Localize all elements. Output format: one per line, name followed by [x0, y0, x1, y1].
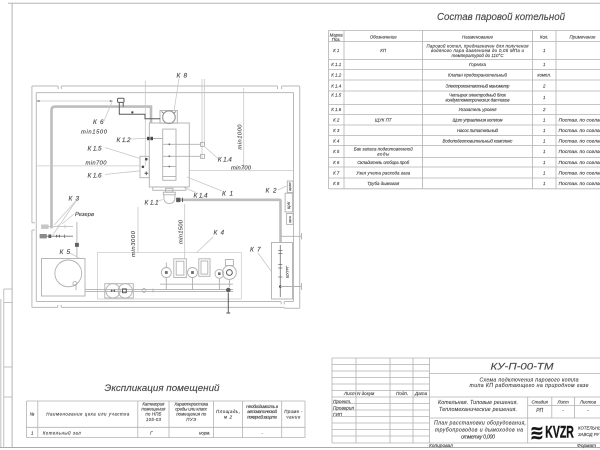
svg-text:Постав. по соглас.: Постав. по соглас.	[559, 160, 600, 165]
svg-text:min1000: min1000	[238, 124, 244, 150]
svg-text:К 6: К 6	[93, 119, 104, 126]
svg-text:Формат: Формат	[577, 443, 596, 449]
svg-text:отметку 0,000: отметку 0,000	[461, 435, 495, 441]
svg-text:Листов: Листов	[579, 399, 597, 404]
svg-text:Копировал: Копировал	[429, 443, 453, 449]
svg-text:KVZR: KVZR	[545, 424, 574, 442]
svg-text:min1500: min1500	[81, 130, 108, 136]
svg-text:К 8: К 8	[177, 73, 188, 80]
svg-text:КОТЕЛЬНЫ: КОТЕЛЬНЫ	[578, 426, 600, 431]
svg-text:ЩУК ПТ: ЩУК ПТ	[375, 118, 392, 123]
svg-text:воды: воды	[377, 152, 390, 157]
svg-text:Примечание: Примечание	[570, 35, 597, 40]
svg-text:К 1.6: К 1.6	[331, 107, 341, 112]
svg-text:ЗАВОД РУ: ЗАВОД РУ	[578, 432, 600, 437]
svg-text:Резерв: Резерв	[75, 212, 94, 218]
svg-text:Постав. по соглас.: Постав. по соглас.	[559, 181, 600, 186]
svg-text:компл.: компл.	[537, 73, 551, 78]
svg-text:Проверил: Проверил	[333, 405, 354, 410]
svg-text:чание: чание	[286, 414, 301, 419]
svg-text:К 3: К 3	[69, 196, 80, 203]
svg-text:min700: min700	[231, 166, 252, 172]
svg-text:К 1.4: К 1.4	[331, 83, 341, 88]
svg-text:min1500: min1500	[179, 219, 185, 244]
svg-text:Лист: Лист	[343, 391, 356, 396]
svg-text:Щит управления котлом: Щит управления котлом	[453, 118, 503, 123]
svg-text:КП: КП	[380, 48, 387, 53]
svg-text:К 1.5: К 1.5	[331, 93, 341, 98]
svg-text:Постав. по соглас.: Постав. по соглас.	[559, 149, 600, 154]
svg-text:Подп.: Подп.	[396, 391, 408, 396]
svg-text:К 8: К 8	[333, 181, 340, 186]
svg-text:К 7: К 7	[250, 247, 261, 254]
svg-text:Котельный зал: Котельный зал	[43, 431, 82, 436]
svg-text:Горелка: Горелка	[469, 62, 487, 67]
svg-text:ГИП: ГИП	[333, 412, 343, 417]
svg-text:К 1.2: К 1.2	[117, 137, 131, 144]
svg-text:Насос питательный: Насос питательный	[457, 128, 499, 133]
svg-text:Стадия: Стадия	[531, 399, 548, 404]
svg-text:Клапан предохранительный: Клапан предохранительный	[448, 73, 508, 78]
svg-text:температурой до 110°С: температурой до 110°С	[452, 53, 505, 58]
svg-text:Постав. по соглас.: Постав. по соглас.	[559, 170, 600, 175]
svg-text:N докум: N докум	[357, 391, 375, 396]
svg-text:ЩУК: ЩУК	[287, 201, 291, 209]
svg-text:пожарной защите: пожарной защите	[247, 414, 278, 419]
svg-text:К 1.4: К 1.4	[194, 193, 208, 200]
svg-text:ПУЭ: ПУЭ	[186, 417, 196, 422]
svg-text:К 3: К 3	[333, 128, 340, 133]
svg-text:Постав. по соглас.: Постав. по соглас.	[559, 128, 600, 133]
svg-text:кондуктометрических датчиков: кондуктометрических датчиков	[446, 98, 511, 103]
svg-text:min3000: min3000	[131, 230, 137, 257]
svg-text:ЩАВР: ЩАВР	[288, 182, 292, 191]
svg-text:Постав. по соглас.: Постав. по соглас.	[559, 118, 600, 123]
svg-text:2: 2	[542, 107, 546, 112]
svg-text:Лист: Лист	[556, 399, 569, 404]
svg-text:Экспликация помещений: Экспликация помещений	[105, 383, 220, 393]
svg-text:Узел учета расхода газа: Узел учета расхода газа	[356, 170, 411, 175]
svg-text:норм.: норм.	[199, 431, 210, 436]
svg-text:min700: min700	[86, 160, 108, 166]
svg-text:РП: РП	[536, 408, 543, 414]
svg-text:К 1.4: К 1.4	[218, 157, 232, 164]
svg-text:Обозначение: Обозначение	[370, 35, 398, 40]
svg-text:Состав паровой котельной: Состав паровой котельной	[437, 12, 565, 23]
svg-text:трубопроводов и дымоходов на: трубопроводов и дымоходов на	[435, 428, 523, 434]
svg-text:К 2: К 2	[266, 188, 277, 195]
svg-text:К 5: К 5	[333, 149, 340, 154]
svg-text:К 2: К 2	[333, 118, 340, 123]
svg-text:Наименование цеха или участка: Наименование цеха или участка	[46, 412, 130, 417]
svg-text:К 6: К 6	[333, 160, 340, 165]
svg-text:К 1.2: К 1.2	[331, 73, 341, 78]
svg-text:К 1.6: К 1.6	[88, 173, 102, 180]
svg-text:Кол.: Кол.	[540, 35, 549, 40]
svg-text:Проект.: Проект.	[333, 399, 351, 404]
svg-text:№: №	[30, 412, 35, 417]
svg-text:КУ-П-00-ТМ: КУ-П-00-ТМ	[491, 362, 554, 373]
svg-text:К 4: К 4	[333, 138, 340, 143]
svg-text:2: 2	[542, 83, 546, 88]
svg-text:Постав. по соглас.: Постав. по соглас.	[559, 138, 600, 143]
svg-text:типа КП работающего на природн: типа КП работающего на природном газе	[470, 383, 589, 389]
svg-text:План расстановки оборудования,: План расстановки оборудования,	[434, 420, 526, 426]
svg-text:Тепломеханические решения.: Тепломеханические решения.	[439, 407, 517, 413]
svg-text:Наименование: Наименование	[462, 35, 494, 40]
svg-text:ШУУРГ: ШУУРГ	[286, 265, 290, 278]
svg-text:К 1.1: К 1.1	[331, 62, 341, 67]
svg-text:К 4: К 4	[214, 230, 225, 237]
svg-text:Дата: Дата	[414, 391, 428, 396]
svg-text:К 1.1: К 1.1	[145, 200, 159, 207]
svg-text:Поз.: Поз.	[332, 37, 341, 42]
svg-text:К 7: К 7	[333, 170, 340, 175]
svg-text:Электроконтактный манометр: Электроконтактный манометр	[446, 83, 511, 88]
svg-text:Указатель уровня: Указатель уровня	[459, 107, 498, 112]
svg-text:Котельная. Типовые решения.: Котельная. Типовые решения.	[438, 400, 518, 406]
svg-text:ЩСН: ЩСН	[288, 215, 292, 223]
svg-text:Труба дымовая: Труба дымовая	[367, 181, 400, 186]
svg-text:К 1: К 1	[333, 48, 340, 53]
svg-text:К 5: К 5	[60, 249, 71, 256]
svg-text:Охладитель отбора проб: Охладитель отбора проб	[357, 160, 410, 165]
svg-text:м 2: м 2	[224, 414, 233, 419]
svg-text:Водоподготовительный комплекс: Водоподготовительный комплекс	[443, 138, 514, 143]
svg-text:К 1.5: К 1.5	[88, 146, 102, 153]
svg-text:К 1: К 1	[222, 191, 233, 198]
svg-text:105-03: 105-03	[146, 417, 162, 422]
